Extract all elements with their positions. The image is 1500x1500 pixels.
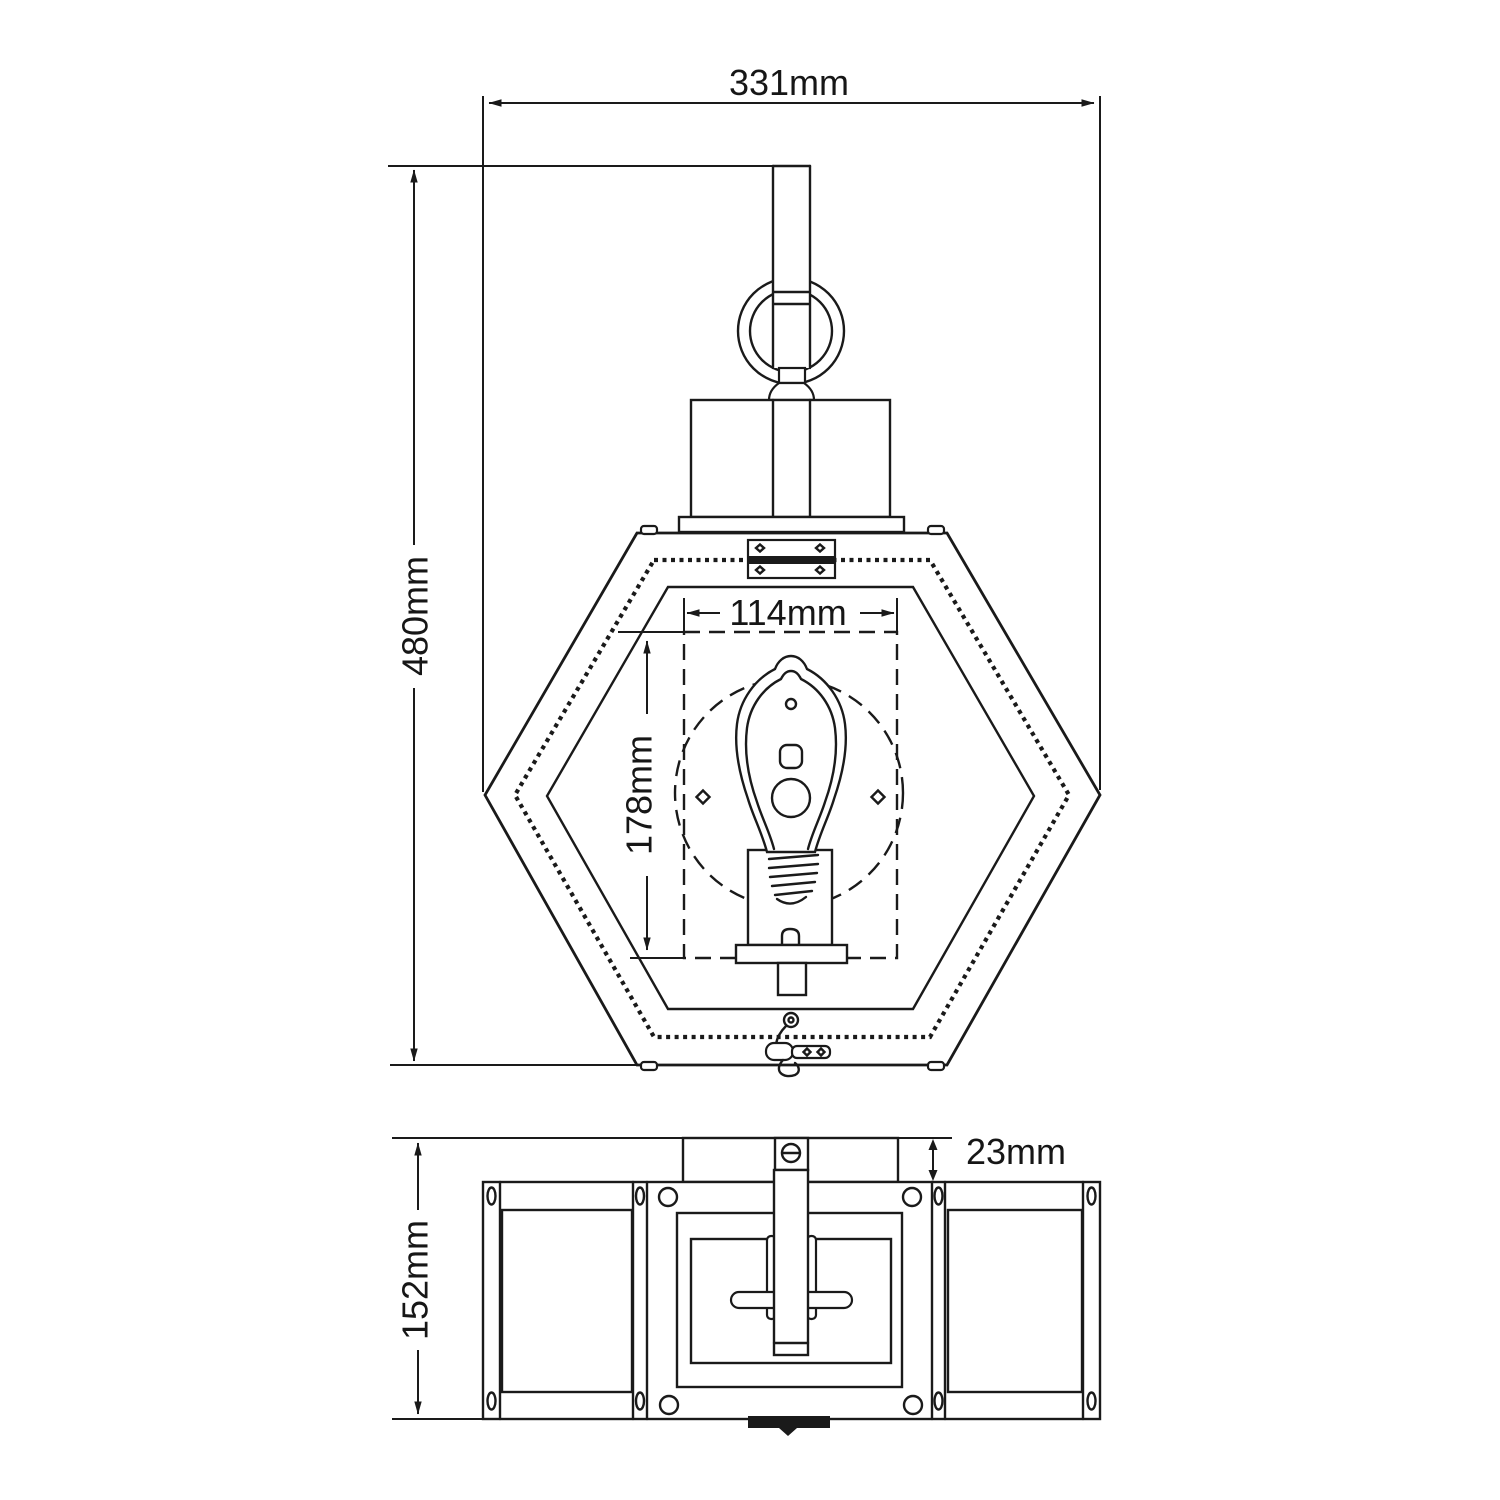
door-hinge (748, 540, 835, 578)
dimension-label-backplate: 23mm (966, 1131, 1066, 1172)
finial-base (769, 383, 814, 400)
door-latch (766, 1013, 830, 1076)
arrow-23-up (929, 1139, 938, 1150)
cap-base-plate (679, 517, 904, 532)
bulb-outer-glass (736, 656, 846, 852)
socket-block (748, 850, 832, 945)
top-right-tab (928, 526, 944, 534)
socket-stem (778, 963, 806, 995)
mounting-arm (738, 166, 844, 400)
center-mark-right (872, 791, 885, 804)
front-latch-plan (748, 1416, 830, 1428)
plan-body (483, 1170, 1100, 1436)
bottom-right-tab (928, 1062, 944, 1070)
latch-knob (766, 1043, 793, 1060)
lantern-cap (679, 400, 904, 532)
bottom-left-tab (641, 1062, 657, 1070)
drawing-page: 331mm 480mm (0, 0, 1500, 1500)
dimension-label-lamp-width: 114mm (729, 592, 846, 633)
front-elevation-view: 331mm 480mm (388, 62, 1100, 1076)
latch-tail (779, 1060, 799, 1076)
edison-bulb-assembly (736, 656, 847, 995)
latch-ring-hole (789, 1018, 794, 1023)
top-left-tab (641, 526, 657, 534)
technical-drawing-canvas: 331mm 480mm (0, 0, 1500, 1500)
arm-rod-mask (774, 258, 809, 368)
front-latch-pointer (779, 1428, 797, 1436)
center-mark-left (697, 791, 710, 804)
dimension-label-overall-width: 331mm (729, 62, 849, 103)
plan-view: 152mm 23mm (392, 1131, 1100, 1436)
dimension-overall-height: 480mm (388, 166, 772, 1065)
mounting-bar (774, 1170, 808, 1355)
socket-base-plate (736, 945, 847, 963)
dimension-label-overall-height: 480mm (395, 556, 436, 676)
hinge-pin-bar (748, 556, 835, 564)
dimension-label-depth: 152mm (395, 1220, 436, 1340)
dimension-lamp-width: 114mm (684, 592, 897, 635)
dimension-label-lamp-height: 178mm (619, 735, 660, 855)
dimension-backplate: 23mm (898, 1131, 1066, 1181)
finial-neck (779, 368, 805, 383)
cap-body (691, 400, 890, 517)
arrow-23-down (929, 1170, 938, 1181)
